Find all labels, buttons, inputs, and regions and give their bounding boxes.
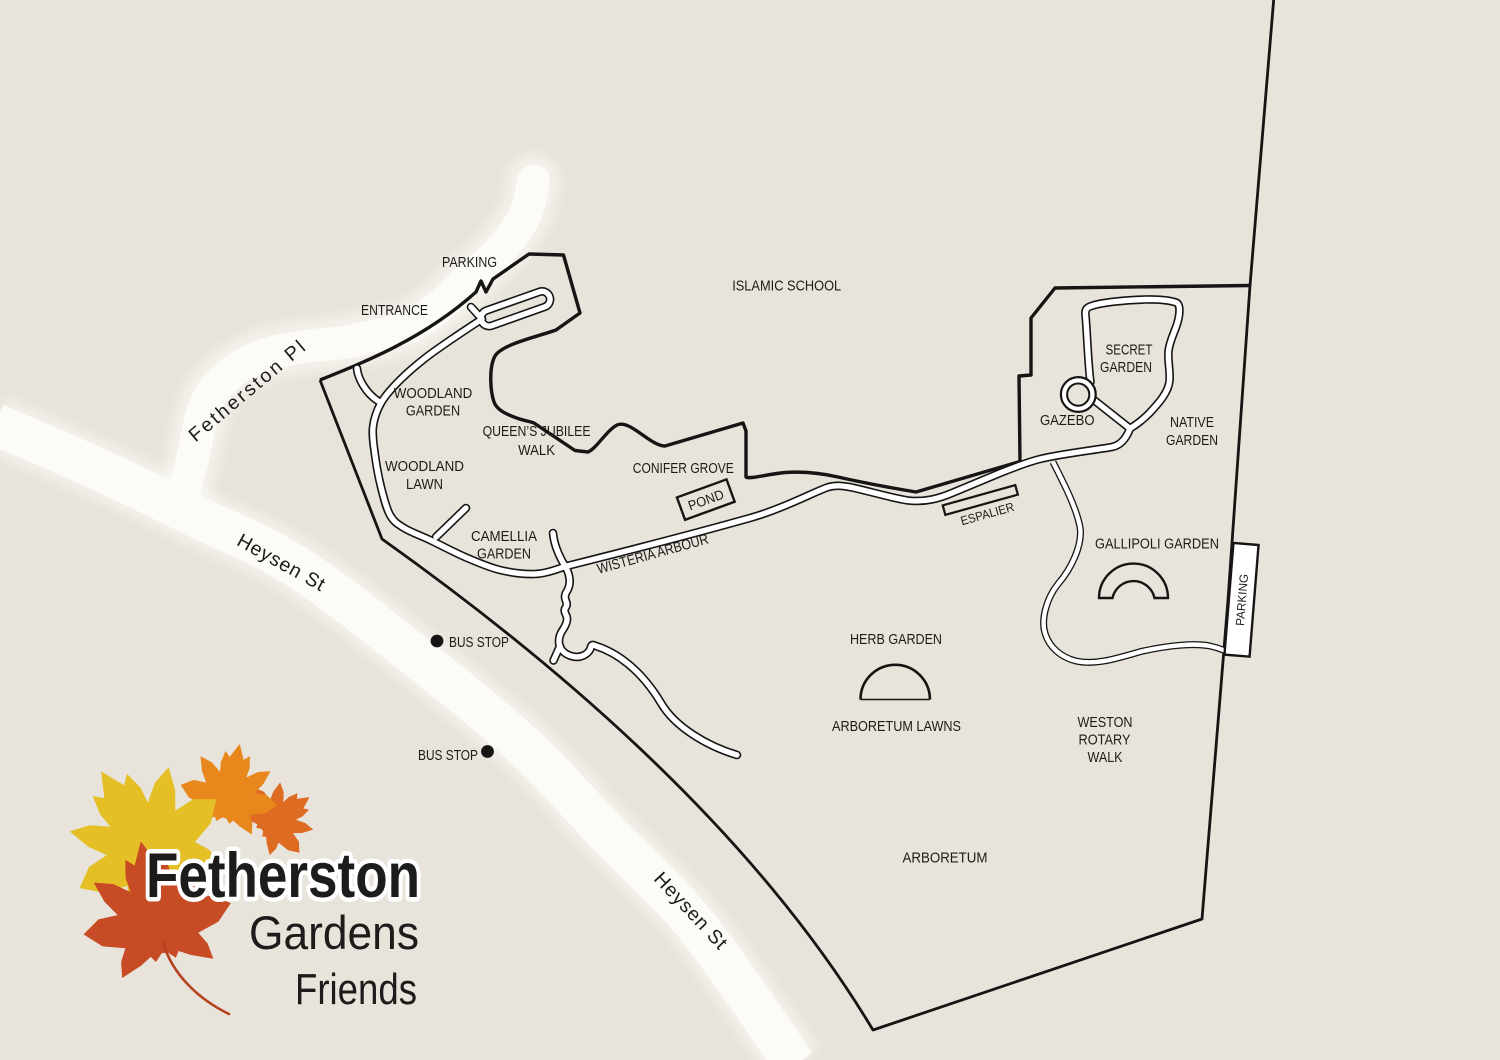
svg-text:GALLIPOLI GARDEN: GALLIPOLI GARDEN	[1095, 537, 1219, 553]
svg-text:BUS STOP: BUS STOP	[418, 748, 478, 764]
svg-text:ENTRANCE: ENTRANCE	[361, 303, 428, 319]
svg-text:CONIFER GROVE: CONIFER GROVE	[633, 461, 734, 477]
svg-text:WOODLAND: WOODLAND	[394, 386, 472, 402]
svg-text:Gardens: Gardens	[249, 906, 419, 959]
svg-text:LAWN: LAWN	[406, 477, 443, 493]
svg-text:WESTON: WESTON	[1078, 715, 1133, 731]
svg-text:WOODLAND: WOODLAND	[385, 459, 464, 475]
svg-text:Friends: Friends	[295, 965, 417, 1014]
svg-text:GARDEN: GARDEN	[1166, 433, 1218, 449]
svg-text:Fetherston: Fetherston	[146, 841, 420, 911]
svg-text:WALK: WALK	[518, 443, 555, 459]
svg-text:GARDEN: GARDEN	[1100, 360, 1152, 376]
svg-text:PARKING: PARKING	[442, 255, 497, 271]
svg-text:WALK: WALK	[1088, 750, 1123, 766]
svg-text:GARDEN: GARDEN	[477, 547, 531, 563]
svg-text:ARBORETUM: ARBORETUM	[903, 851, 988, 867]
svg-text:BUS STOP: BUS STOP	[449, 635, 509, 651]
svg-text:NATIVE: NATIVE	[1170, 415, 1214, 431]
svg-text:QUEEN’S JUBILEE: QUEEN’S JUBILEE	[483, 424, 591, 440]
svg-text:CAMELLIA: CAMELLIA	[471, 529, 537, 545]
svg-text:ISLAMIC SCHOOL: ISLAMIC SCHOOL	[732, 279, 841, 295]
svg-text:ARBORETUM LAWNS: ARBORETUM LAWNS	[832, 719, 961, 735]
svg-text:SECRET: SECRET	[1106, 343, 1153, 359]
svg-text:ROTARY: ROTARY	[1079, 733, 1131, 749]
svg-text:GAZEBO: GAZEBO	[1040, 413, 1095, 429]
svg-text:GARDEN: GARDEN	[406, 404, 460, 420]
svg-text:HERB GARDEN: HERB GARDEN	[850, 632, 942, 648]
